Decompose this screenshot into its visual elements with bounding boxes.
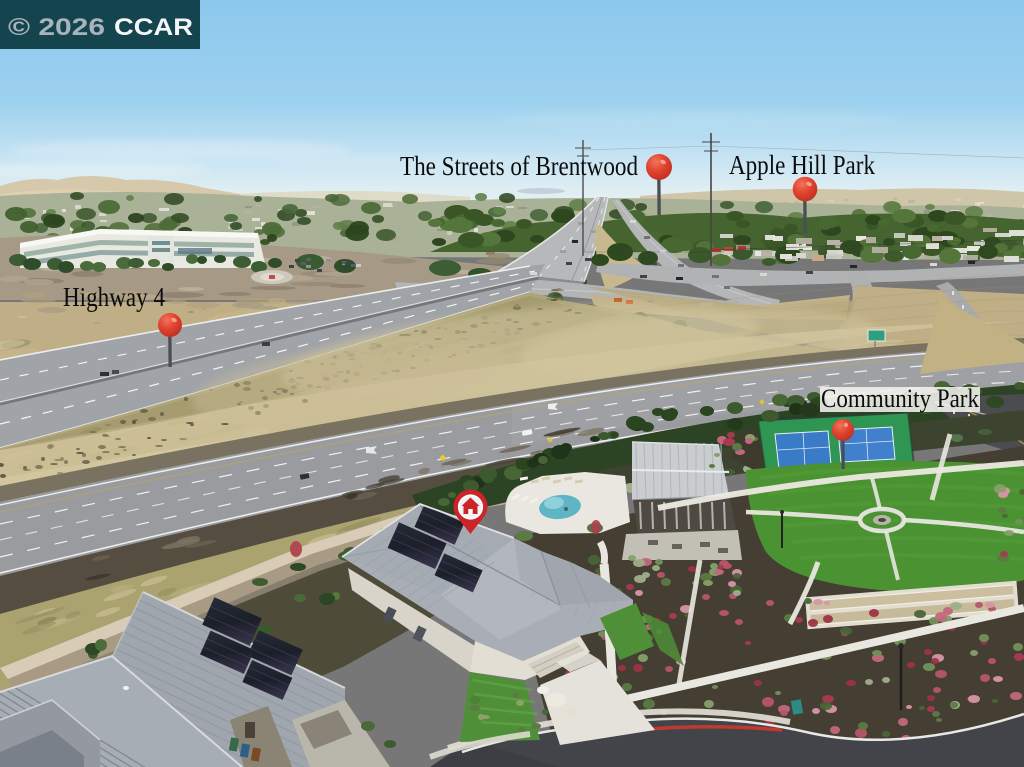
svg-text:Apple Hill Park: Apple Hill Park bbox=[729, 150, 875, 180]
svg-text:The Streets of Brentwood: The Streets of Brentwood bbox=[400, 151, 638, 181]
svg-text:Community Park: Community Park bbox=[821, 384, 979, 413]
svg-text:CCAR: CCAR bbox=[114, 14, 193, 41]
svg-text:© 2026: © 2026 bbox=[8, 14, 105, 41]
svg-text:Highway 4: Highway 4 bbox=[63, 282, 165, 312]
